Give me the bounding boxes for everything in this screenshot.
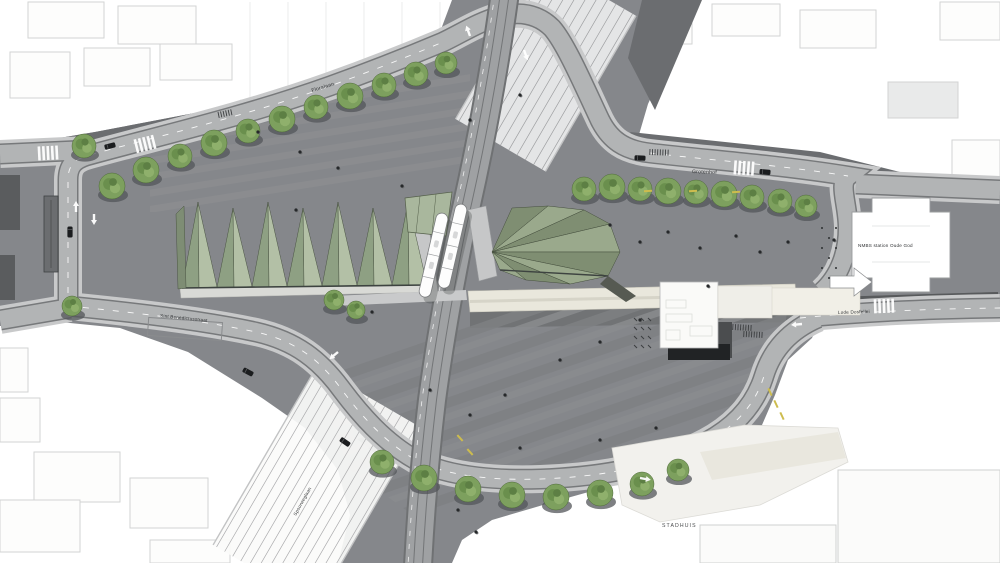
site-plan-drawing: Floralaan Grotenhof Sint Benedictusstraa…: [0, 0, 1000, 563]
site-plan-canvas: Floralaan Grotenhof Sint Benedictusstraa…: [0, 0, 1000, 563]
label-grotenhof: Grotenhof: [692, 169, 717, 176]
label-nmbs-station: NMBS station Oude God: [858, 243, 913, 248]
label-stadhuis: STADHUIS: [662, 523, 697, 529]
